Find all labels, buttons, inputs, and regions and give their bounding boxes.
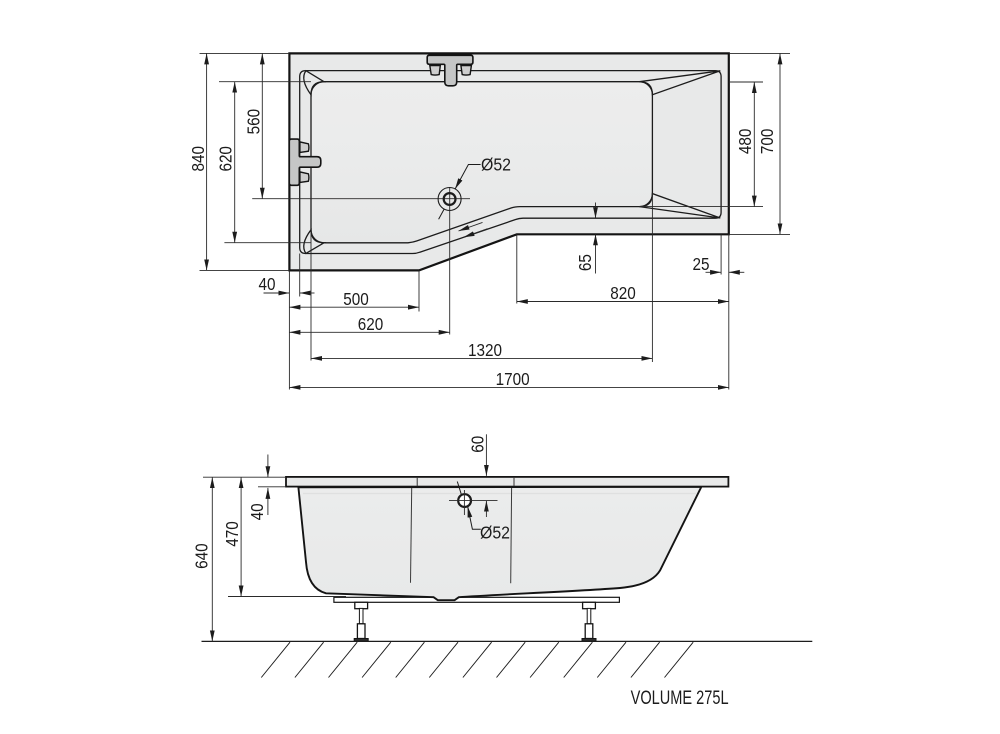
svg-text:40: 40 (259, 274, 276, 294)
svg-text:700: 700 (757, 128, 777, 154)
svg-text:25: 25 (693, 254, 710, 274)
svg-text:480: 480 (735, 128, 755, 154)
svg-text:640: 640 (191, 543, 211, 569)
svg-text:470: 470 (222, 521, 242, 547)
svg-text:Ø52: Ø52 (481, 154, 511, 174)
svg-text:500: 500 (343, 289, 369, 309)
svg-text:840: 840 (188, 146, 208, 172)
svg-text:620: 620 (216, 146, 236, 172)
svg-text:65: 65 (575, 254, 595, 271)
svg-text:820: 820 (610, 283, 636, 303)
svg-text:60: 60 (468, 436, 488, 453)
svg-text:Ø52: Ø52 (480, 523, 510, 543)
svg-text:560: 560 (244, 109, 264, 135)
svg-text:1700: 1700 (496, 369, 530, 389)
svg-text:620: 620 (358, 314, 384, 334)
svg-text:40: 40 (247, 503, 267, 520)
svg-text:1320: 1320 (468, 340, 502, 360)
svg-text:VOLUME 275L: VOLUME 275L (631, 687, 729, 709)
